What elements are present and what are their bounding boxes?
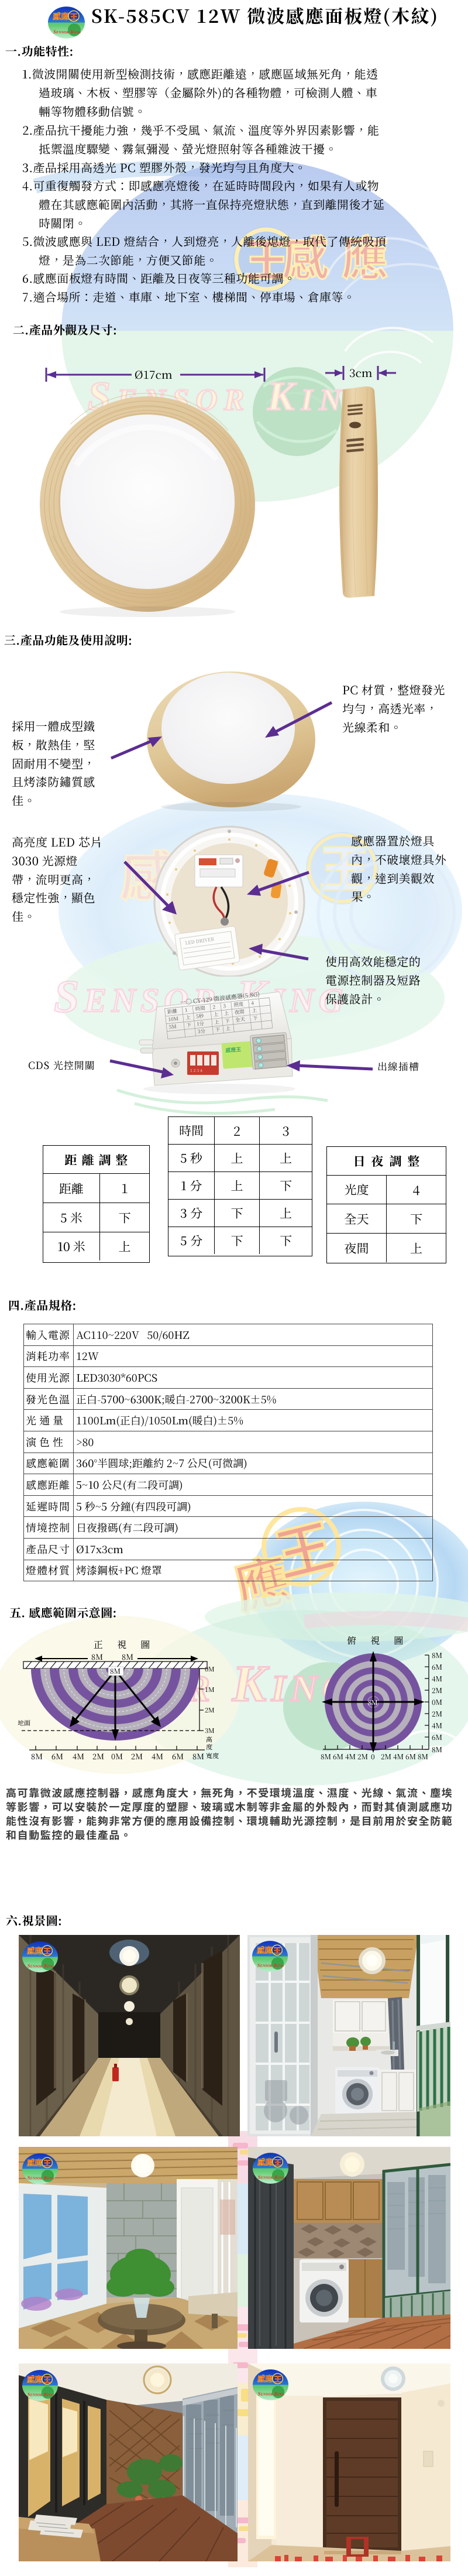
svg-text:5秒: 5秒: [195, 1012, 204, 1020]
svg-text:8M: 8M: [122, 1651, 133, 1662]
svg-text:Ø17cm: Ø17cm: [135, 366, 172, 382]
svg-text:6M: 6M: [432, 1732, 443, 1742]
svg-text:8M: 8M: [432, 1650, 443, 1660]
svg-text:感應: 感應: [257, 1944, 273, 1955]
svg-text:8M: 8M: [31, 1751, 43, 1762]
svg-text:0M: 0M: [205, 1664, 215, 1674]
svg-text:感應王: 感應王: [225, 1046, 242, 1054]
svg-text:5M: 5M: [168, 1023, 177, 1030]
svg-text:2M: 2M: [131, 1751, 143, 1762]
svg-text:4M: 4M: [432, 1721, 443, 1731]
svg-text:8M: 8M: [418, 1752, 429, 1762]
svg-text:0M: 0M: [432, 1697, 443, 1707]
svg-text:6M: 6M: [432, 1662, 443, 1672]
svg-text:0: 0: [371, 1752, 375, 1762]
svg-text:2M: 2M: [432, 1709, 443, 1719]
svg-text:俯 視 圖: 俯 視 圖: [347, 1633, 409, 1647]
svg-text:8M: 8M: [110, 1666, 121, 1676]
svg-text:1M: 1M: [205, 1685, 215, 1694]
svg-text:王: 王: [274, 2373, 281, 2385]
svg-text:6M: 6M: [172, 1751, 184, 1762]
svg-text:感應: 感應: [27, 2156, 43, 2168]
svg-text:寬度: 寬度: [206, 1751, 219, 1760]
svg-text:10M: 10M: [168, 1015, 179, 1023]
svg-text:王: 王: [273, 1945, 281, 1956]
svg-text:2M: 2M: [432, 1686, 443, 1695]
svg-text:4M: 4M: [73, 1751, 84, 1762]
svg-text:1 2 3 4: 1 2 3 4: [190, 1068, 202, 1074]
svg-text:8M: 8M: [192, 1751, 204, 1762]
svg-text:王: 王: [70, 11, 78, 22]
svg-text:王: 王: [43, 2374, 51, 2385]
svg-text:照度: 照度: [233, 1001, 245, 1009]
svg-text:度: 度: [206, 1742, 213, 1752]
svg-text:6M: 6M: [51, 1751, 63, 1762]
svg-text:6M: 6M: [333, 1752, 344, 1762]
svg-text:1分: 1分: [197, 1020, 205, 1027]
svg-text:8M: 8M: [368, 1698, 378, 1707]
svg-text:夜間: 夜間: [233, 1008, 245, 1016]
svg-text:全天: 全天: [235, 1016, 246, 1024]
svg-text:2M: 2M: [357, 1752, 369, 1762]
svg-text:6M: 6M: [405, 1752, 417, 1762]
svg-text:4M: 4M: [393, 1752, 404, 1762]
svg-text:2M: 2M: [381, 1752, 392, 1762]
svg-text:4M: 4M: [152, 1751, 163, 1762]
svg-text:王: 王: [43, 1945, 51, 1957]
svg-text:8M: 8M: [91, 1651, 103, 1662]
svg-text:4M: 4M: [432, 1674, 443, 1684]
svg-text:8M: 8M: [321, 1752, 332, 1762]
svg-text:時間: 時間: [195, 1005, 206, 1013]
svg-text:感應: 感應: [257, 2156, 274, 2167]
svg-text:8M: 8M: [432, 1745, 443, 1755]
svg-text:地面: 地面: [18, 1718, 30, 1728]
svg-text:感應: 感應: [257, 2372, 274, 2384]
svg-text:感應: 感應: [53, 11, 69, 22]
svg-text:王: 王: [274, 2157, 281, 2168]
svg-text:感應: 感應: [27, 1944, 43, 1956]
svg-text:0M: 0M: [111, 1751, 123, 1762]
svg-text:3M: 3M: [205, 1726, 215, 1735]
svg-text:距離: 距離: [167, 1008, 178, 1016]
svg-text:2M: 2M: [92, 1751, 104, 1762]
svg-text:3cm: 3cm: [349, 365, 372, 381]
svg-text:王: 王: [43, 2157, 51, 2169]
svg-text:4M: 4M: [345, 1752, 356, 1762]
svg-text:2M: 2M: [205, 1705, 215, 1715]
svg-text:感應: 感應: [27, 2373, 43, 2385]
svg-text:正 視 圖: 正 視 圖: [94, 1638, 156, 1651]
svg-text:3分: 3分: [197, 1027, 206, 1035]
